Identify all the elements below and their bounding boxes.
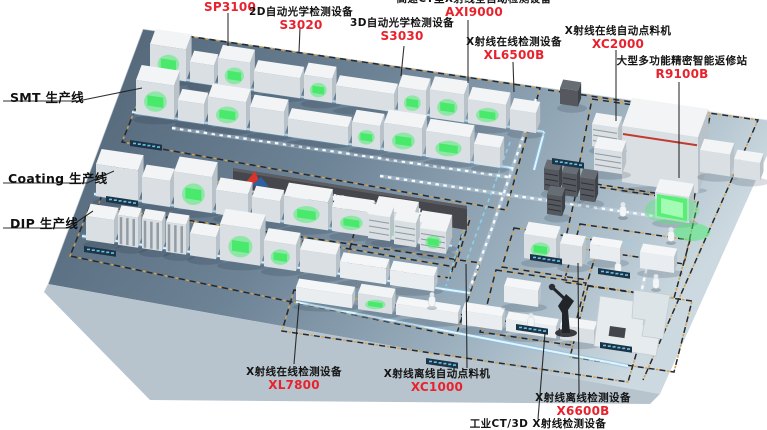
machine-box — [700, 139, 734, 177]
machine-box — [622, 98, 709, 193]
machine-box — [468, 87, 511, 129]
equipment-name: X射线在线检测设备 — [246, 366, 342, 378]
machine-box — [430, 76, 469, 122]
machine-box — [560, 233, 586, 267]
line-label-coating: Coating 生产线 — [8, 168, 107, 187]
line-label-dip: DIP 生产线 — [10, 213, 78, 232]
machine-box — [420, 217, 450, 254]
machine-box — [358, 284, 396, 314]
equipment-name: 工业CT/3D X射线检测设备 — [470, 418, 606, 430]
equipment-model: S3020 — [249, 18, 353, 32]
machine-box — [734, 150, 764, 181]
label-xc2000: X射线在线自动点料机 XC2000 — [565, 25, 672, 52]
machine-box — [580, 169, 598, 203]
machine-box — [208, 83, 251, 130]
equipment-model: XL6500B — [466, 48, 562, 62]
equipment-model: XC2000 — [565, 37, 672, 51]
machine-box — [136, 65, 180, 120]
label-x6600b: X射线离线检测设备 X6600B — [535, 392, 631, 419]
machine-box — [178, 89, 208, 124]
label-r9100b: 大型多功能精密智能返修站 R9100B — [617, 55, 748, 82]
label-xl7800: X射线在线检测设备 XL7800 — [246, 366, 342, 393]
machine-box — [190, 51, 218, 86]
label-xl6500b: X射线在线检测设备 XL6500B — [466, 36, 562, 63]
equipment-name: X射线离线自动点料机 — [384, 368, 491, 380]
machine-box — [142, 165, 175, 207]
line-label-smt: SMT 生产线 — [10, 87, 84, 106]
machine-box — [394, 210, 420, 248]
machine-box — [304, 63, 337, 103]
machine-box — [398, 74, 431, 116]
machine-box — [590, 236, 623, 262]
factory-overview-image: 卓茂科技 SP3100 2D自动光学检测设备 S30 — [0, 0, 767, 430]
machine-box — [384, 110, 427, 157]
label-s3020: 2D自动光学检测设备 S3020 — [249, 6, 353, 33]
label-xc1000: X射线离线自动点料机 XC1000 — [384, 368, 491, 395]
machine-box — [368, 204, 394, 242]
equipment-name: X射线离线检测设备 — [535, 392, 631, 404]
label-s3030: 3D自动光学检测设备 S3030 — [350, 17, 454, 44]
machine-box — [190, 222, 220, 259]
equipment-name: X射线在线检测设备 — [466, 36, 562, 48]
equipment-model: X6600B — [535, 404, 631, 418]
machine-box — [560, 80, 581, 107]
machine-box — [166, 212, 190, 254]
machine-box — [474, 133, 504, 168]
machine-box — [264, 228, 301, 271]
machine-box — [426, 119, 475, 164]
machine-box — [174, 157, 218, 214]
machine-box — [594, 137, 626, 174]
machine-box — [640, 244, 677, 273]
equipment-name: 2D自动光学检测设备 — [249, 6, 353, 18]
equipment-model: XL7800 — [246, 378, 342, 392]
machine-box — [220, 209, 266, 266]
equipment-model: AXI9000 — [397, 5, 552, 19]
machine-box — [86, 204, 119, 244]
machine-box — [218, 45, 255, 91]
machine-box — [284, 183, 333, 231]
machine-box — [547, 186, 565, 217]
machine-box — [254, 60, 304, 98]
machine-box — [250, 95, 289, 136]
machine-box — [510, 98, 540, 133]
machine-box — [352, 110, 385, 150]
label-axi9000: 高速CT型X射线全自动检测设备 AXI9000 — [397, 0, 552, 20]
equipment-model: S3030 — [350, 29, 454, 43]
machine-box — [504, 278, 541, 307]
equipment-model: XC1000 — [384, 380, 491, 394]
machine-box — [142, 209, 166, 251]
machine-box — [300, 238, 340, 277]
equipment-name: X射线在线自动点料机 — [565, 25, 672, 37]
equipment-name: 大型多功能精密智能返修站 — [617, 55, 748, 67]
machine-box — [118, 205, 142, 247]
equipment-model: R9100B — [617, 67, 748, 81]
label-industrial-ct: 工业CT/3D X射线检测设备 — [470, 418, 606, 430]
